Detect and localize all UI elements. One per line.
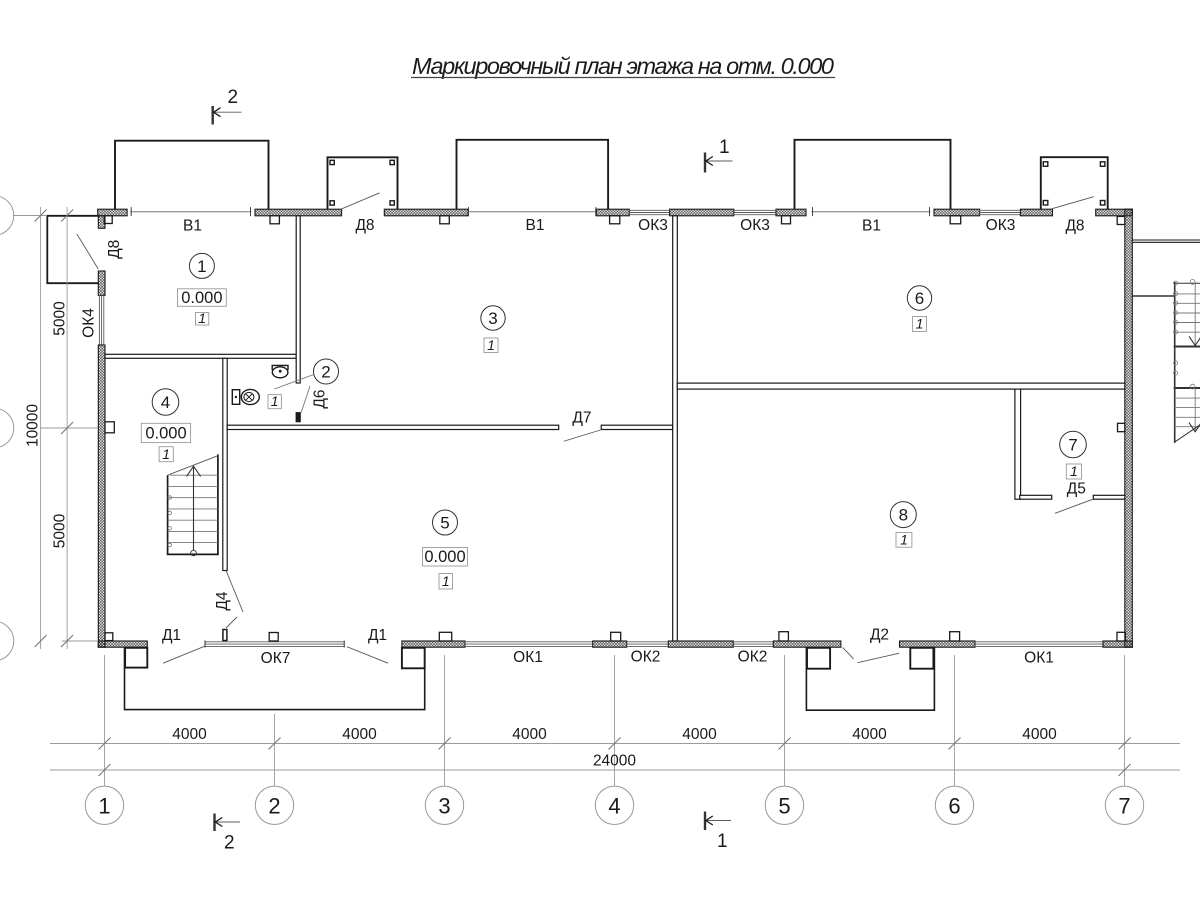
svg-text:1: 1 [487, 337, 495, 353]
svg-text:0.000: 0.000 [424, 548, 465, 566]
svg-text:3: 3 [438, 793, 450, 818]
svg-text:2: 2 [228, 87, 239, 108]
svg-text:5: 5 [440, 514, 449, 533]
svg-text:4000: 4000 [512, 726, 547, 743]
svg-text:0.000: 0.000 [145, 424, 186, 442]
svg-text:Д5: Д5 [1067, 481, 1086, 498]
svg-text:1: 1 [98, 793, 110, 818]
svg-text:3: 3 [488, 309, 497, 328]
svg-text:8: 8 [899, 506, 908, 525]
svg-text:1: 1 [442, 573, 450, 589]
svg-text:1: 1 [271, 393, 279, 409]
svg-text:Д4: Д4 [214, 591, 231, 610]
svg-text:1: 1 [719, 137, 730, 158]
svg-text:4: 4 [161, 393, 170, 412]
svg-text:Д6: Д6 [312, 389, 329, 408]
svg-text:Д1: Д1 [162, 627, 181, 644]
svg-text:ОК3: ОК3 [740, 217, 770, 234]
svg-text:Д7: Д7 [572, 410, 591, 427]
svg-text:6: 6 [948, 793, 960, 818]
svg-text:ОК3: ОК3 [638, 217, 668, 234]
svg-text:1: 1 [1070, 463, 1078, 479]
svg-text:В1: В1 [526, 217, 545, 234]
svg-text:6: 6 [915, 289, 924, 308]
svg-text:ОК2: ОК2 [631, 649, 661, 666]
svg-text:1: 1 [197, 257, 206, 276]
svg-text:ОК4: ОК4 [81, 308, 98, 338]
svg-text:1: 1 [717, 831, 728, 852]
svg-text:ОК1: ОК1 [513, 649, 543, 666]
svg-text:4000: 4000 [172, 726, 207, 743]
svg-text:2: 2 [224, 833, 235, 854]
svg-text:7: 7 [1118, 793, 1130, 818]
svg-text:4000: 4000 [342, 726, 377, 743]
svg-text:ОК7: ОК7 [261, 650, 291, 667]
svg-text:ОК3: ОК3 [986, 217, 1016, 234]
svg-text:В1: В1 [862, 218, 881, 235]
svg-text:1: 1 [162, 446, 170, 462]
svg-text:0.000: 0.000 [181, 289, 222, 307]
svg-text:Д8: Д8 [106, 240, 123, 259]
svg-text:4000: 4000 [852, 726, 887, 743]
svg-text:Д1: Д1 [368, 627, 387, 644]
svg-text:4000: 4000 [682, 726, 717, 743]
svg-text:Д8: Д8 [355, 217, 374, 234]
svg-text:5000: 5000 [52, 513, 69, 548]
svg-text:ОК1: ОК1 [1024, 650, 1054, 667]
svg-text:2: 2 [268, 793, 280, 818]
svg-text:4000: 4000 [1022, 726, 1057, 743]
svg-text:В1: В1 [183, 218, 202, 235]
svg-text:4: 4 [608, 793, 620, 818]
svg-text:1: 1 [916, 316, 924, 332]
svg-text:Д8: Д8 [1065, 218, 1084, 235]
svg-text:2: 2 [321, 363, 330, 382]
svg-text:5: 5 [778, 793, 790, 818]
svg-text:1: 1 [900, 532, 908, 548]
svg-text:ОК2: ОК2 [738, 649, 768, 666]
svg-text:10000: 10000 [24, 404, 41, 447]
svg-text:1: 1 [198, 310, 206, 326]
svg-text:Д2: Д2 [870, 627, 889, 644]
svg-text:5000: 5000 [52, 301, 69, 336]
svg-text:24000: 24000 [593, 753, 636, 770]
svg-text:Маркировочный план этажа на от: Маркировочный план этажа на отм. 0.000 [412, 53, 834, 79]
svg-text:7: 7 [1068, 436, 1077, 455]
